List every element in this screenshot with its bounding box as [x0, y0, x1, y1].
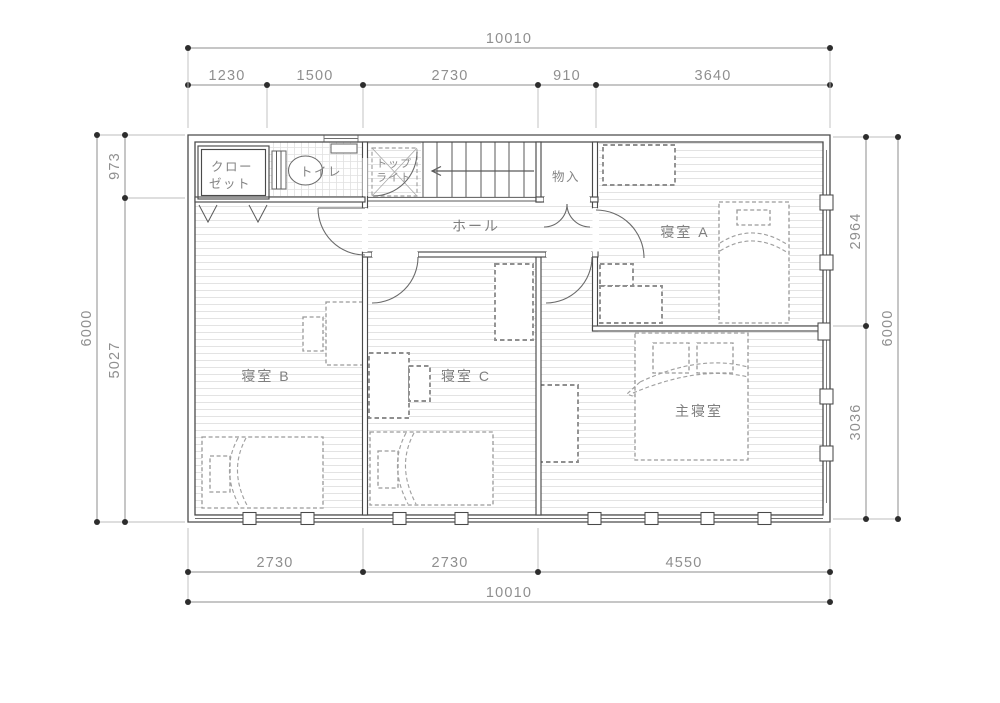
wall-bedroom-a-left-lower: [593, 256, 598, 331]
dim-right-seg-2: 3036: [848, 403, 864, 440]
dim-bottom-total: 10010: [486, 585, 532, 601]
room-label-bedroom-c: 寝室 C: [441, 368, 491, 384]
wall-bedroom-a-bottom: [593, 326, 824, 331]
dim-top-seg-5: 3640: [694, 68, 731, 84]
door-opening-bedroom-a: [593, 208, 598, 256]
dimension-bottom: 2730 2730 4550 10010: [185, 528, 833, 605]
room-label-closet-line2: ゼット: [209, 177, 251, 191]
bed-icon-bedroom-b: [202, 437, 323, 508]
wall-bedroom-b-c: [363, 252, 368, 515]
wall-bedroom-c-master: [536, 257, 541, 515]
room-label-storage: 物入: [552, 170, 580, 184]
cabinet-icon-master: [540, 385, 578, 462]
dimension-top: 10010 1230 1500 2730 910 3640: [185, 31, 833, 128]
bed-icon-master: [627, 333, 748, 460]
wall-storage-bottom-left-stub: [536, 197, 544, 202]
door-opening-toilet: [363, 158, 368, 196]
dim-top-seg-1: 1230: [208, 68, 245, 84]
bed-icon-bedroom-c: [370, 432, 493, 505]
dim-top-seg-4: 910: [553, 68, 581, 84]
dim-left-total: 6000: [79, 309, 95, 346]
stairs-up-arrow: [432, 167, 534, 176]
wall-hall-bottom-2: [418, 252, 546, 257]
dim-right-seg-1: 2964: [848, 212, 864, 249]
dim-bottom-seg-2: 2730: [431, 555, 468, 571]
door-opening-master: [546, 252, 592, 257]
room-label-hall: ホール: [452, 218, 500, 234]
dim-bottom-seg-3: 4550: [665, 555, 702, 571]
bed-icon-bedroom-a: [719, 202, 789, 323]
room-label-toilet: トイレ: [300, 165, 342, 179]
room-label-bedroom-a: 寝室 A: [660, 224, 709, 240]
room-label-toplight-line2: ライト: [376, 172, 412, 184]
door-opening-bedroom-c: [372, 252, 418, 257]
door-opening-bedroom-b: [363, 208, 368, 252]
dim-left-seg-1: 973: [107, 152, 123, 180]
room-label-master-bedroom: 主寝室: [675, 403, 723, 419]
floor-plan-canvas: クロー ゼット トイレ トップ ライト ホール 物入 寝室 A 寝室 B 寝室 …: [0, 0, 1000, 703]
dim-bottom-seg-1: 2730: [256, 555, 293, 571]
floor-plan-page: クロー ゼット トイレ トップ ライト ホール 物入 寝室 A 寝室 B 寝室 …: [0, 0, 1000, 703]
dimension-right: 2964 3036 6000: [833, 134, 901, 522]
room-label-closet-line1: クロー: [211, 160, 253, 174]
room-label-toplight-line1: トップ: [376, 157, 412, 170]
dim-top-seg-2: 1500: [296, 68, 333, 84]
dim-right-total: 6000: [880, 309, 896, 346]
wall-stairs-storage: [536, 142, 541, 202]
wall-storage-bottom-right-stub: [590, 197, 598, 202]
window-band-east: [818, 150, 833, 503]
room-label-bedroom-b: 寝室 B: [241, 368, 290, 384]
wardrobe-icon-bedroom-c: [495, 264, 533, 340]
dim-top-seg-3: 2730: [431, 68, 468, 84]
desk-icon-bedroom-a: [603, 145, 675, 185]
dim-top-total: 10010: [486, 31, 532, 47]
dimension-left: 6000 973 5027: [79, 132, 185, 525]
dim-left-seg-2: 5027: [107, 341, 123, 378]
